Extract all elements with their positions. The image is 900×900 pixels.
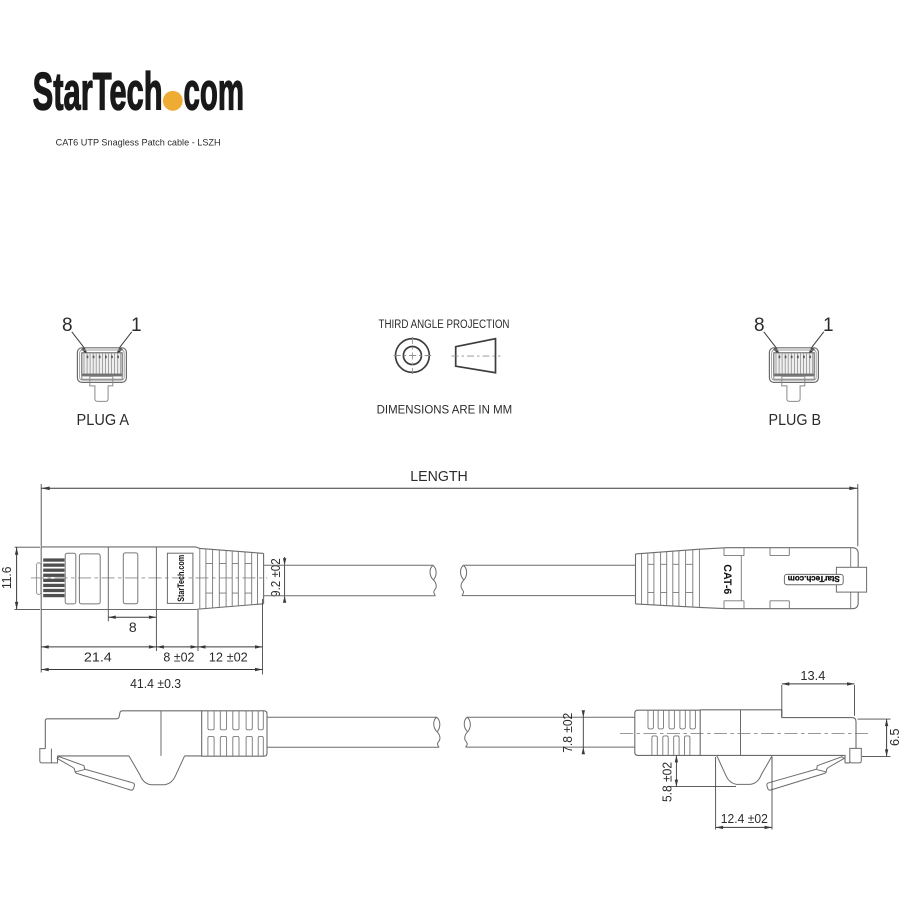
svg-text:13.4: 13.4 xyxy=(800,668,825,683)
svg-text:PLUG B: PLUG B xyxy=(769,412,822,429)
svg-text:12.4 ±02: 12.4 ±02 xyxy=(721,811,768,826)
svg-text:41.4 ±0.3: 41.4 ±0.3 xyxy=(130,676,181,691)
svg-text:9.2 ±02: 9.2 ±02 xyxy=(268,558,283,597)
svg-text:StarTech.com: StarTech.com xyxy=(176,555,187,602)
svg-text:11.6: 11.6 xyxy=(0,567,14,590)
svg-text:PLUG A: PLUG A xyxy=(77,412,130,429)
svg-text:LENGTH: LENGTH xyxy=(410,468,468,485)
svg-text:6.5: 6.5 xyxy=(887,729,900,747)
svg-text:1: 1 xyxy=(131,315,142,336)
svg-text:THIRD ANGLE PROJECTION: THIRD ANGLE PROJECTION xyxy=(379,319,510,331)
svg-text:StarTech.com: StarTech.com xyxy=(787,574,839,584)
svg-text:8 ±02: 8 ±02 xyxy=(163,650,194,665)
svg-text:DIMENSIONS ARE IN MM: DIMENSIONS ARE IN MM xyxy=(377,405,513,417)
svg-text:12 ±02: 12 ±02 xyxy=(209,650,248,665)
svg-text:21.4: 21.4 xyxy=(84,650,112,665)
svg-text:1: 1 xyxy=(823,315,834,336)
svg-text:7.8 ±02: 7.8 ±02 xyxy=(560,713,575,753)
svg-text:5.8 ±02: 5.8 ±02 xyxy=(660,762,675,802)
svg-text:CAT6 UTP Snagless Patch cable: CAT6 UTP Snagless Patch cable - LSZH xyxy=(56,137,221,148)
svg-text:8: 8 xyxy=(754,315,765,336)
svg-text:8: 8 xyxy=(62,315,73,336)
svg-text:CAT-6: CAT-6 xyxy=(721,564,733,594)
svg-text:com: com xyxy=(184,62,245,121)
svg-text:StarTech: StarTech xyxy=(33,62,163,121)
svg-text:8: 8 xyxy=(129,619,137,635)
